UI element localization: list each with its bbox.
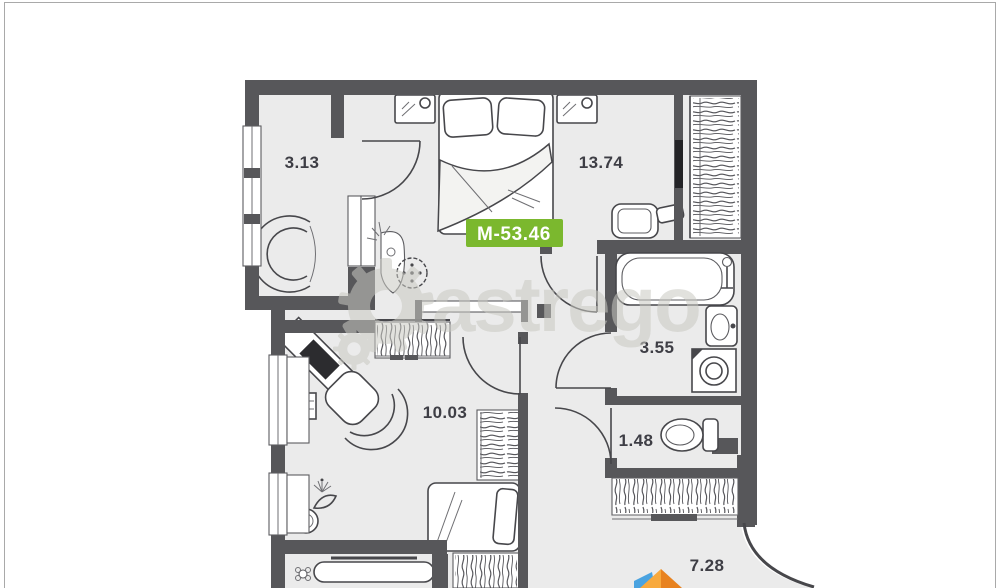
floor-plan: 3.13 13.74 3.55 1.48 10.03 7.28 М-53.46 [0,0,1000,588]
room-label-bedroom: 13.74 [579,153,624,172]
hall-cabinet-icon [348,196,375,266]
tv-stand-icon [314,558,434,582]
mirror-frame-icon [557,95,597,123]
room-label-wc: 1.48 [619,431,654,450]
pillow [443,97,493,137]
pillow [497,97,545,136]
watermark-text: astrego [432,260,700,348]
wardrobe-icon [477,410,521,480]
double-bed-icon [438,92,553,234]
area-badge: М-53.46 [466,219,563,247]
washing-machine-icon [692,349,736,392]
pillow [493,488,519,545]
window [269,355,309,445]
room-label-loggia: 3.13 [285,153,320,172]
wardrobe-icon [453,553,519,588]
window [269,473,309,535]
room-label-balcony: 7.28 [690,556,725,575]
window [243,126,261,266]
area-badge-label: М-53.46 [477,224,551,245]
sink-icon [706,306,737,346]
toilet-icon [661,419,718,451]
hanger-rail-icon [612,478,738,521]
wardrobe-icon [690,96,741,238]
mirror-frame-icon [395,95,435,123]
room-label-living: 10.03 [423,403,468,422]
